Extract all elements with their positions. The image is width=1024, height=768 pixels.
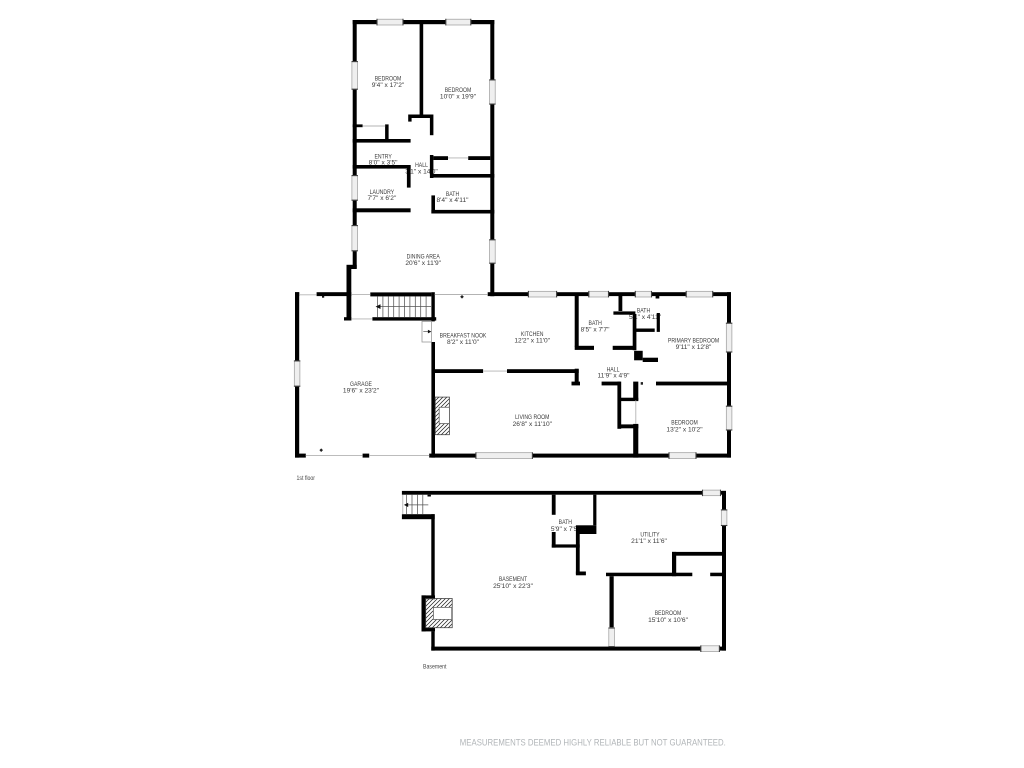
svg-text:1st floor: 1st floor	[297, 476, 316, 482]
svg-text:8'5" x 7'7": 8'5" x 7'7"	[581, 327, 610, 334]
svg-text:12'2" x 11'0": 12'2" x 11'0"	[514, 338, 550, 345]
svg-text:9'11" x 12'8": 9'11" x 12'8"	[676, 344, 712, 351]
svg-text:10'0" x 19'9": 10'0" x 19'9"	[440, 93, 477, 100]
svg-text:19'6" x 23'2": 19'6" x 23'2"	[343, 388, 380, 395]
svg-text:MEASUREMENTS DEEMED HIGHLY REL: MEASUREMENTS DEEMED HIGHLY RELIABLE BUT …	[460, 738, 726, 749]
svg-text:15'10" x 10'6": 15'10" x 10'6"	[648, 617, 688, 624]
svg-text:8'2" x 11'0": 8'2" x 11'0"	[447, 339, 480, 346]
svg-text:13'2" x 10'2": 13'2" x 10'2"	[666, 426, 703, 433]
svg-text:8'4" x 4'11": 8'4" x 4'11"	[436, 197, 469, 204]
svg-text:Basement: Basement	[423, 664, 447, 670]
svg-text:7'7" x 6'2": 7'7" x 6'2"	[367, 195, 396, 202]
svg-text:20'6" x 11'9": 20'6" x 11'9"	[405, 260, 441, 267]
svg-text:26'8" x 11'10": 26'8" x 11'10"	[513, 421, 553, 428]
svg-text:25'10" x 22'3": 25'10" x 22'3"	[493, 583, 533, 590]
svg-text:11'9" x 4'9": 11'9" x 4'9"	[597, 372, 630, 379]
svg-text:9'4" x 17'2": 9'4" x 17'2"	[372, 82, 405, 89]
svg-text:21'1" x 11'6": 21'1" x 11'6"	[631, 538, 667, 545]
